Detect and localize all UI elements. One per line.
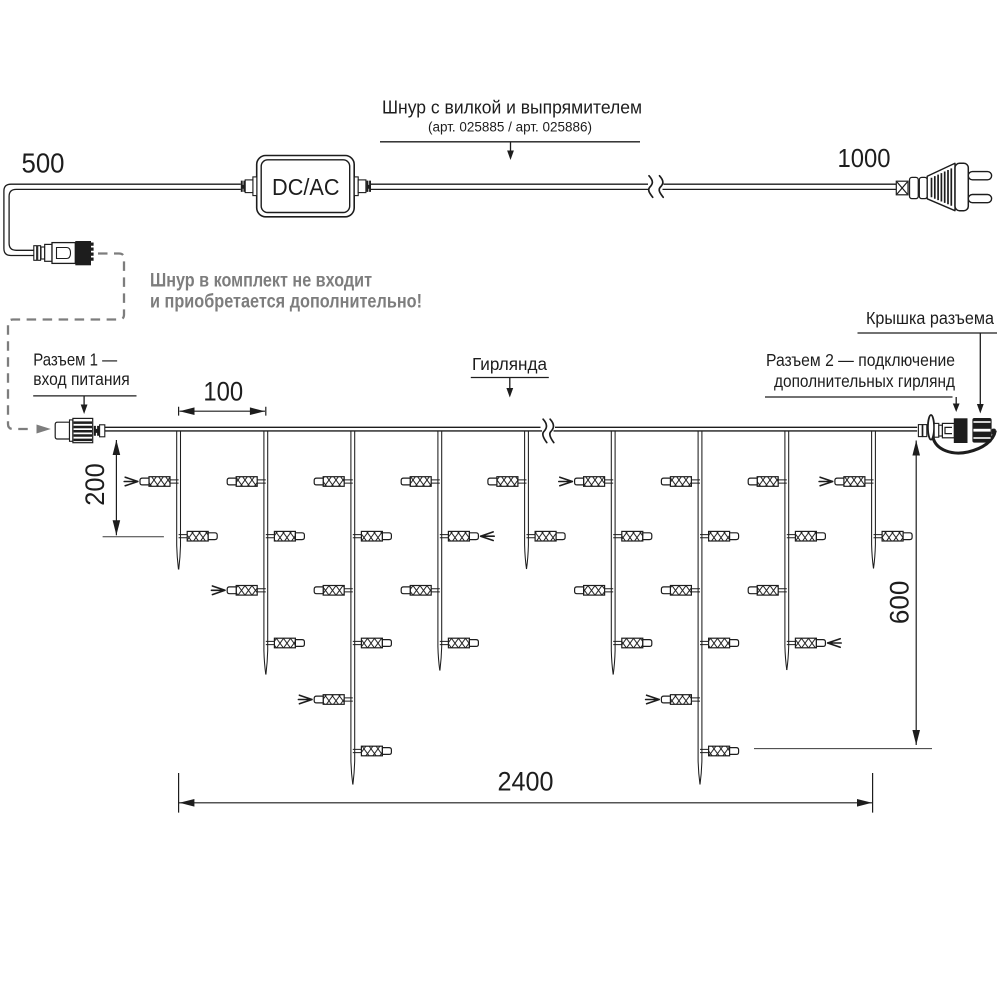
svg-text:Гирлянда: Гирлянда	[472, 354, 547, 374]
svg-text:600: 600	[885, 581, 915, 625]
svg-text:Разъем 1 —: Разъем 1 —	[33, 350, 117, 370]
svg-text:100: 100	[203, 376, 243, 406]
svg-text:Разъем 2 — подключение: Разъем 2 — подключение	[766, 350, 955, 370]
svg-text:вход питания: вход питания	[33, 369, 130, 389]
svg-text:и приобретается дополнительно!: и приобретается дополнительно!	[150, 292, 422, 313]
svg-text:(арт. 025885 / арт. 025886): (арт. 025885 / арт. 025886)	[428, 120, 592, 135]
svg-text:200: 200	[80, 463, 110, 506]
svg-text:Шнур с вилкой и выпрямителем: Шнур с вилкой и выпрямителем	[382, 97, 642, 118]
svg-text:1000: 1000	[838, 143, 891, 173]
svg-text:500: 500	[22, 147, 65, 178]
svg-text:Крышка разъема: Крышка разъема	[866, 308, 994, 328]
svg-text:Шнур в комплект не входит: Шнур в комплект не входит	[150, 271, 372, 292]
svg-text:2400: 2400	[498, 766, 554, 796]
svg-text:дополнительных гирлянд: дополнительных гирлянд	[774, 371, 955, 391]
svg-text:DC/AC: DC/AC	[272, 174, 340, 200]
